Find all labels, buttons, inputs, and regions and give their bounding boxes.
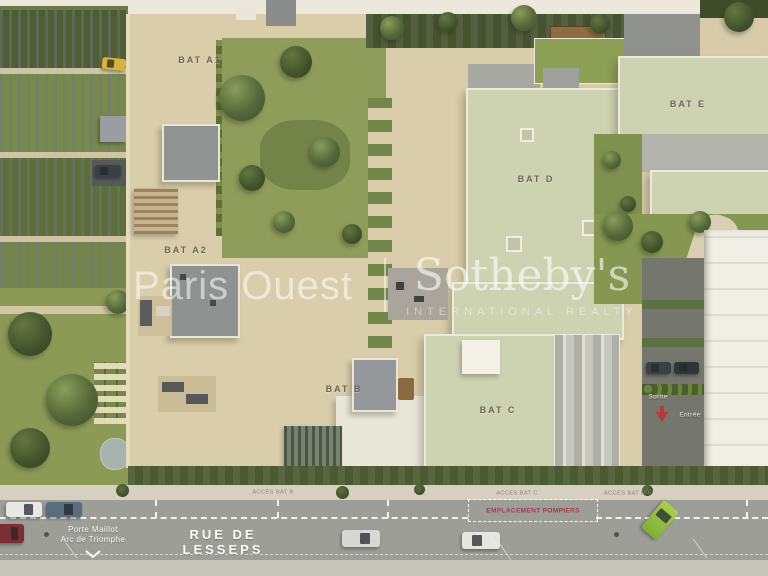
patio-furniture xyxy=(414,296,424,302)
direction-arrow-icon xyxy=(85,550,101,558)
street-bush xyxy=(116,484,129,497)
sofa xyxy=(162,382,184,392)
tree xyxy=(724,2,754,32)
neighbour-building xyxy=(704,230,768,472)
building-label-bat-d: BAT D xyxy=(496,174,576,184)
ramp-exit-label: Sortie xyxy=(644,393,673,400)
parked-car-blue xyxy=(46,502,82,517)
ramp-hedge xyxy=(642,338,704,347)
tree xyxy=(603,211,633,241)
tree xyxy=(46,374,98,426)
pergola xyxy=(134,188,178,234)
parking-bay-line xyxy=(0,517,468,519)
street-bush xyxy=(414,484,425,495)
outdoor-table xyxy=(398,378,414,400)
ramp-entry-label: Entrée xyxy=(676,411,705,418)
roof-vent xyxy=(210,300,216,306)
parking-bay-divider xyxy=(746,500,748,518)
parking-bay-divider xyxy=(155,500,157,518)
tree xyxy=(380,16,404,40)
parked-car-white xyxy=(6,502,42,517)
building-label-bat-a2: BAT A2 xyxy=(146,245,226,255)
ramp-entry-arrow-icon xyxy=(656,406,668,422)
tree xyxy=(620,196,636,212)
building-label-bat-c: BAT C xyxy=(458,405,538,415)
street-name: RUE DE LESSEPS xyxy=(148,527,298,557)
bat-e-roof xyxy=(618,56,768,138)
tree xyxy=(603,151,621,169)
direction-line2: Arc de Triomphe xyxy=(40,535,146,545)
parking-bay-divider xyxy=(387,500,389,518)
sofa xyxy=(140,300,152,326)
parked-car-dark xyxy=(674,362,699,374)
rooftop-unit xyxy=(543,68,579,90)
car-red xyxy=(0,524,24,543)
rooftop-unit xyxy=(236,2,256,20)
skylight xyxy=(520,128,534,142)
tree xyxy=(8,312,52,356)
garden-shed xyxy=(100,116,126,142)
parking-bay-divider xyxy=(277,500,279,518)
tree xyxy=(590,14,610,34)
tree xyxy=(273,211,295,233)
sofa xyxy=(186,394,208,404)
parked-car-dark xyxy=(646,362,671,374)
rooftop-chimney xyxy=(266,0,296,26)
bat-e-gray-roof xyxy=(624,14,700,58)
access-label-bat-b: ACCÈS BAT B xyxy=(241,488,306,494)
sofa xyxy=(156,306,170,316)
direction-line1: Porte Maillot xyxy=(40,525,146,535)
south-hedge-band xyxy=(128,466,768,485)
building-label-bat-a1: BAT A1 xyxy=(160,55,240,65)
bat-e-lower-roof xyxy=(650,170,768,220)
car-silver xyxy=(342,530,380,547)
tree xyxy=(280,46,312,78)
garden-plot xyxy=(0,242,126,288)
car-white xyxy=(462,532,500,549)
tree xyxy=(219,75,265,121)
parking-bay-line xyxy=(596,517,768,519)
access-label-bat-c: ACCÈS BAT C xyxy=(485,489,550,495)
street-bush xyxy=(336,486,349,499)
parked-car-dark xyxy=(95,165,121,177)
patio-furniture xyxy=(396,282,404,290)
building-label-bat-e: BAT E xyxy=(648,99,728,109)
building-label-bat-b: BAT B xyxy=(304,384,384,394)
tree xyxy=(310,137,340,167)
tree xyxy=(10,428,50,468)
parked-car-yellow xyxy=(101,57,126,71)
bat-a1-roof xyxy=(162,124,220,182)
site-plan-rendering: Sortie Entrée ACCÈS BAT B ACCÈS BAT C AC… xyxy=(0,0,768,576)
access-label-bat-de: ACCÈS BAT D-E xyxy=(592,489,664,495)
manhole xyxy=(614,532,619,537)
ramp-hedge xyxy=(642,300,704,309)
tree xyxy=(239,165,265,191)
skylight xyxy=(506,236,522,252)
tree xyxy=(511,5,537,31)
rooftop-unit-white xyxy=(462,340,500,374)
pergola xyxy=(284,426,342,468)
planter-grid xyxy=(94,362,130,424)
inner-patio xyxy=(388,268,448,320)
direction-sign: Porte Maillot Arc de Triomphe xyxy=(40,525,146,563)
tree xyxy=(438,12,458,32)
fire-lane-zone: EMPLACEMENT POMPIERS xyxy=(468,499,598,522)
fire-lane-label: EMPLACEMENT POMPIERS xyxy=(486,507,580,514)
tree xyxy=(342,224,362,244)
tree xyxy=(641,231,663,253)
setback-terraces xyxy=(554,334,620,472)
roof-vent xyxy=(180,274,186,280)
